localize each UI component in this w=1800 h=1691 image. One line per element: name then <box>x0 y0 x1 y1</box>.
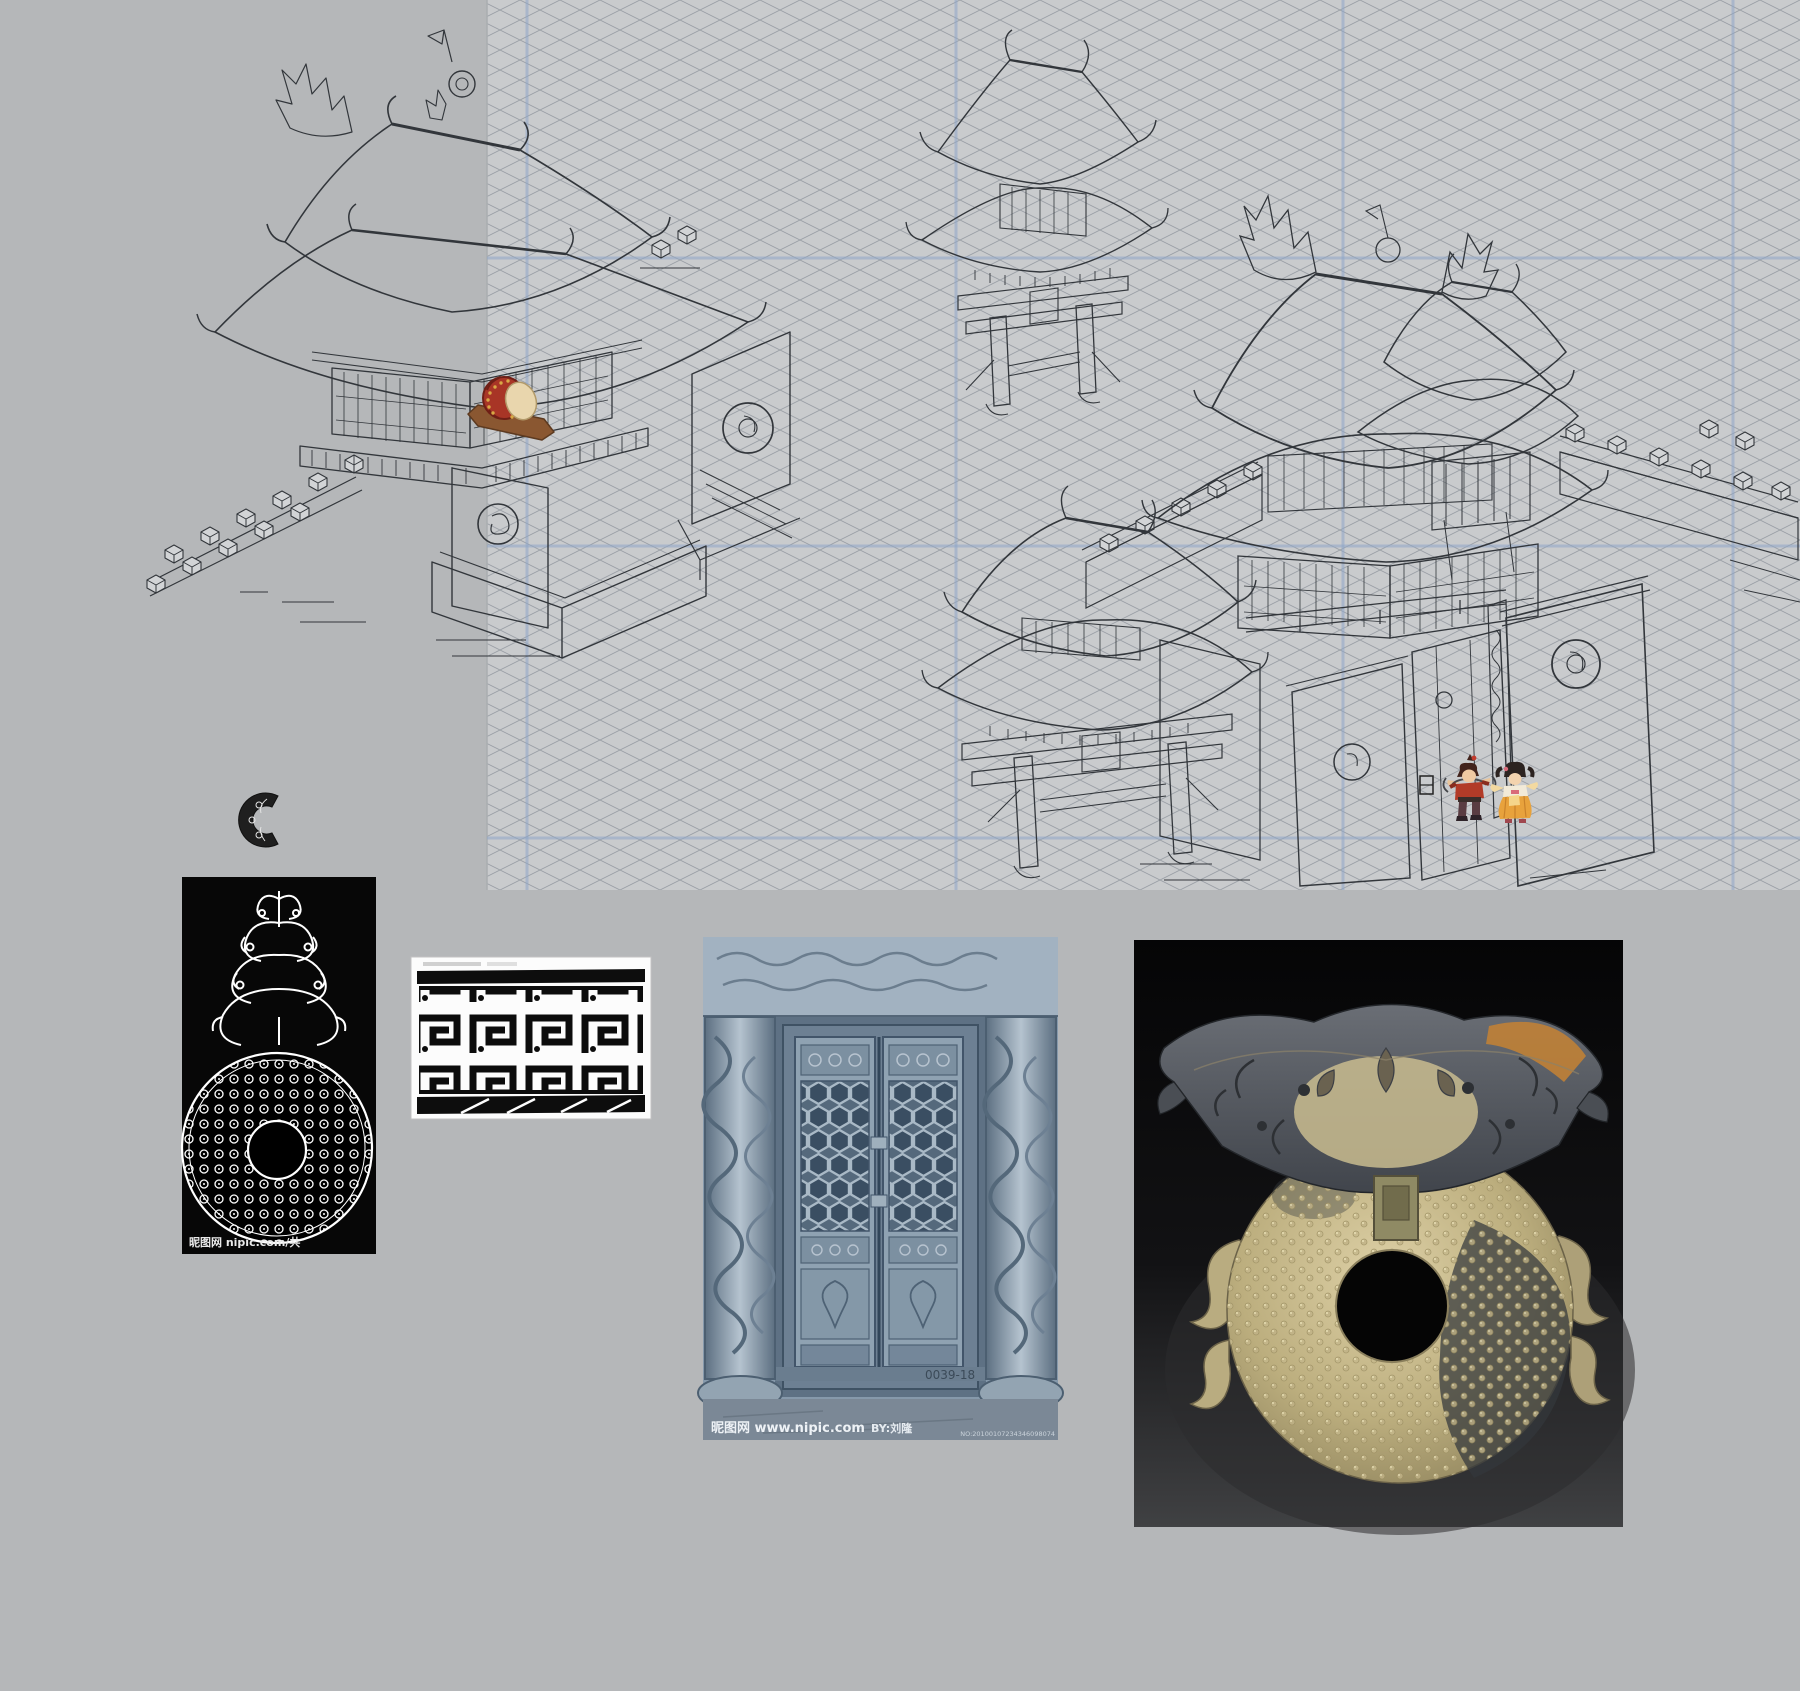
door-lattice-panel <box>801 1081 869 1231</box>
stone-door-photo: 0039-18 昵图网 www.nipic.com BY:刘隆 NO:20100… <box>698 937 1063 1440</box>
rubbing-pattern-band <box>419 988 643 1092</box>
bronze-rubbing-image <box>411 957 651 1119</box>
door-leaf-right <box>883 1037 963 1367</box>
door-leaf-left <box>795 1037 875 1367</box>
dragon-column-left <box>698 1017 782 1410</box>
door-watermark-serial: NO:20100107234346098074 <box>960 1430 1055 1438</box>
jade-disc-hole <box>1336 1250 1448 1362</box>
jade-pendant-plate-image: 昵图网 nipic.com/共 <box>182 877 376 1254</box>
jade-bi-photo <box>1134 940 1635 1535</box>
door-watermark-by: BY:刘隆 <box>871 1421 913 1435</box>
door-lintel <box>703 937 1058 1017</box>
concept-art-board: 昵图网 nipic.com/共 <box>0 0 1800 1691</box>
rubbing-faint-caption <box>423 962 481 966</box>
rubbing-top-bar <box>417 969 645 984</box>
board-canvas: 昵图网 nipic.com/共 <box>0 0 1800 1691</box>
blueprint-grid-area <box>487 0 1800 890</box>
pendant-disc-hole <box>248 1121 306 1179</box>
dragon-column-right <box>979 1017 1063 1410</box>
door-plate-number: 0039-18 <box>925 1368 975 1382</box>
pendant-watermark: 昵图网 nipic.com/共 <box>189 1235 300 1249</box>
door-lattice-panel <box>889 1081 957 1231</box>
door-watermark-site: 昵图网 www.nipic.com <box>711 1421 865 1436</box>
